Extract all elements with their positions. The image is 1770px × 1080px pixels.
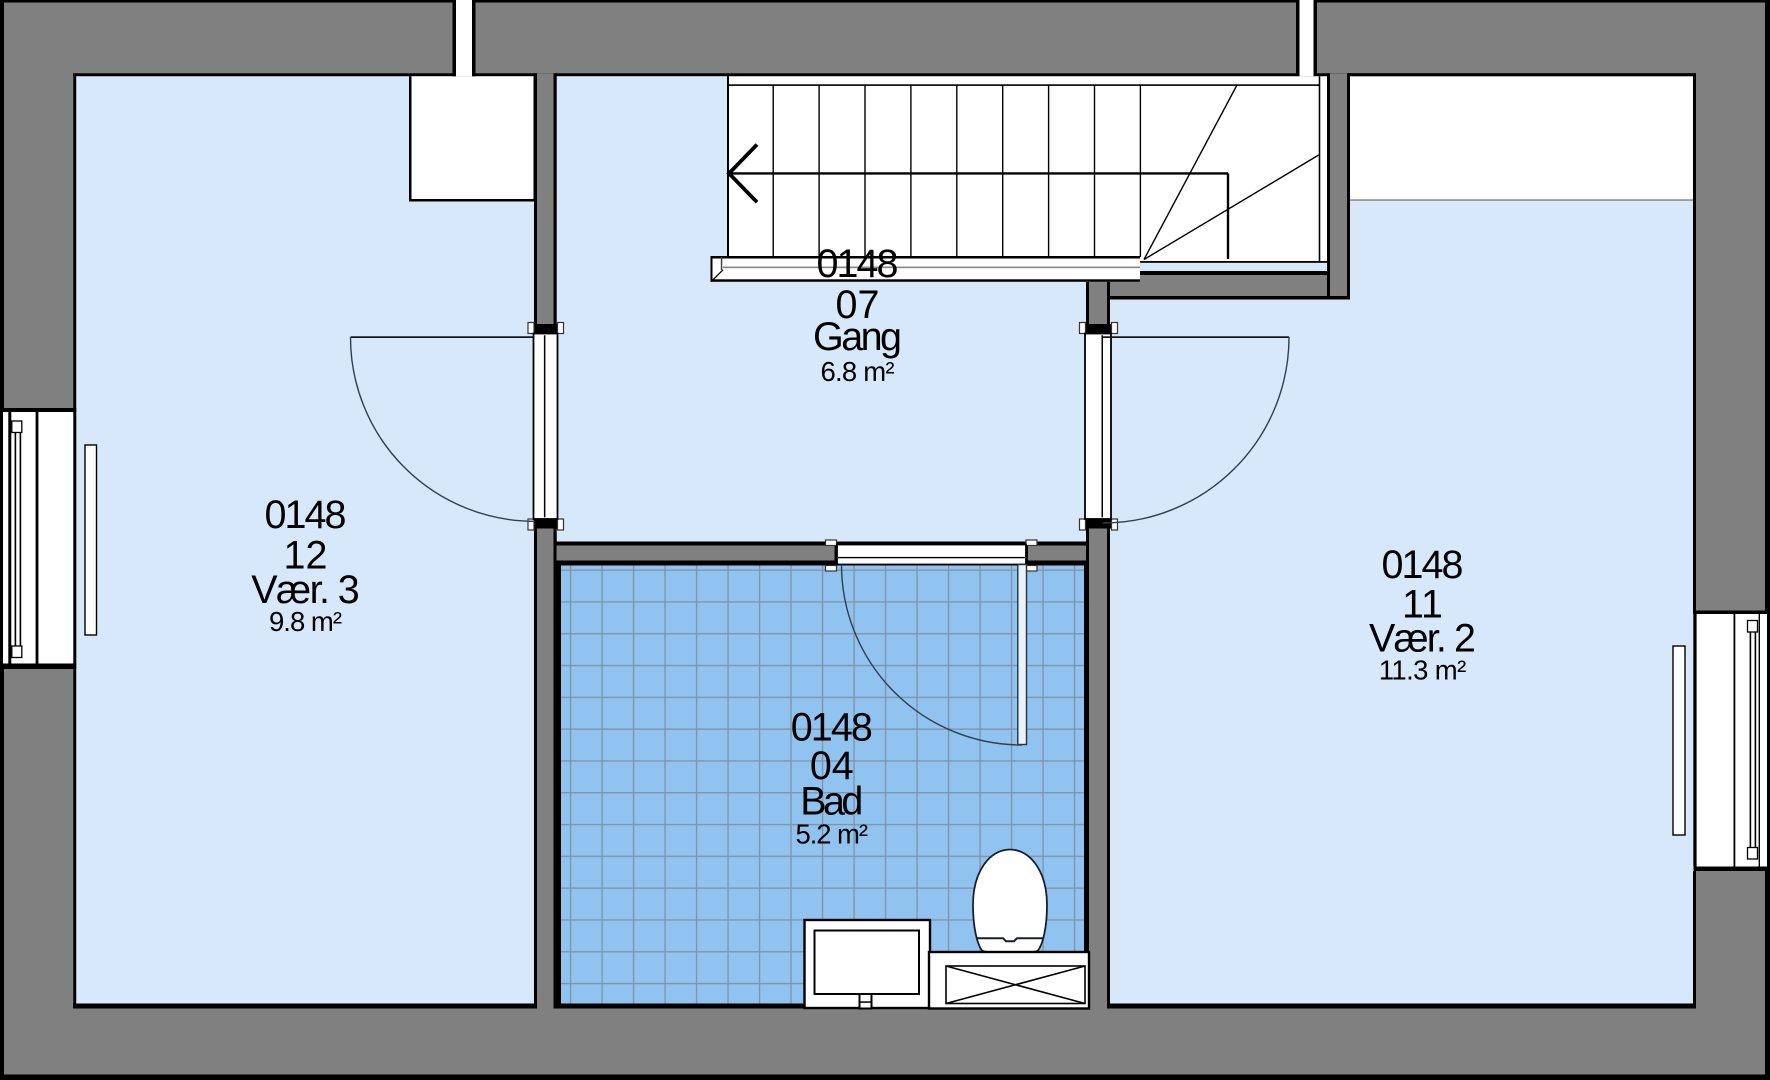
svg-text:6.8 m²: 6.8 m² [821,356,895,387]
svg-text:0148: 0148 [791,706,873,750]
svg-text:Bad: Bad [800,780,863,824]
svg-text:5.2 m²: 5.2 m² [796,819,869,850]
svg-text:0148: 0148 [265,493,347,537]
svg-text:Gang: Gang [813,315,902,359]
svg-text:0148: 0148 [817,242,899,286]
svg-text:0148: 0148 [1382,543,1464,587]
svg-text:11.3 m²: 11.3 m² [1379,655,1467,686]
svg-text:9.8 m²: 9.8 m² [269,606,342,637]
